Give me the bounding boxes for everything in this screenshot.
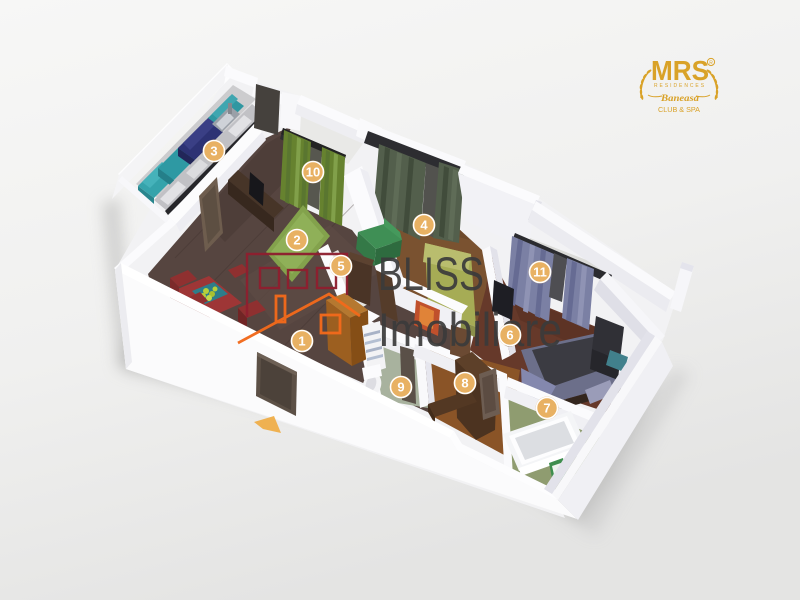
svg-text:BLISS: BLISS xyxy=(378,247,484,300)
svg-text:RESIDENCES: RESIDENCES xyxy=(654,83,706,89)
svg-text:CLUB & SPA: CLUB & SPA xyxy=(658,107,700,114)
svg-text:7: 7 xyxy=(543,401,550,416)
svg-text:1: 1 xyxy=(298,334,305,349)
svg-text:MRS: MRS xyxy=(651,55,709,86)
svg-text:Imobiliare: Imobiliare xyxy=(378,303,562,356)
svg-text:3: 3 xyxy=(210,144,217,159)
svg-text:2: 2 xyxy=(293,233,300,248)
svg-text:10: 10 xyxy=(306,165,320,180)
svg-text:6: 6 xyxy=(506,328,513,343)
svg-text:4: 4 xyxy=(420,218,428,233)
svg-text:9: 9 xyxy=(397,380,404,395)
svg-text:R: R xyxy=(709,61,713,67)
svg-text:Baneasa: Baneasa xyxy=(660,94,699,104)
svg-text:5: 5 xyxy=(337,259,344,274)
svg-text:11: 11 xyxy=(533,265,547,280)
svg-text:8: 8 xyxy=(461,376,468,391)
